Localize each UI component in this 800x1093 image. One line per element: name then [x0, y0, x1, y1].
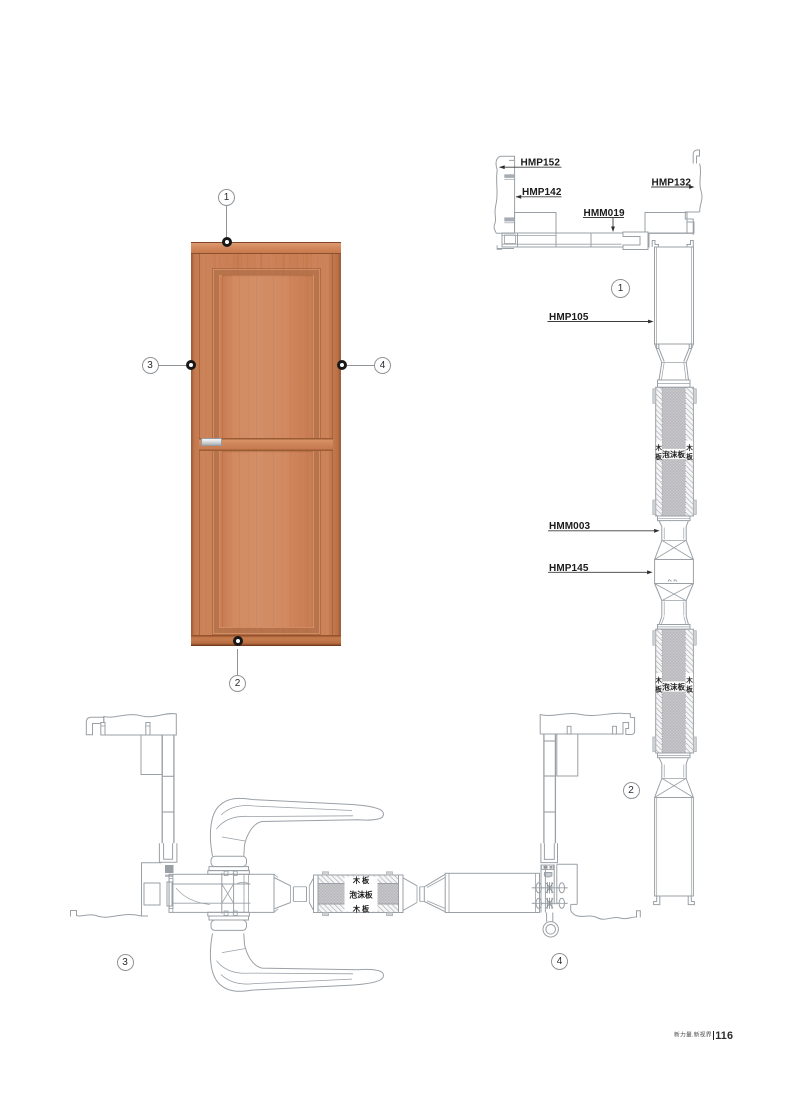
svg-text:木: 木	[654, 443, 662, 452]
svg-text:泡沫板: 泡沫板	[662, 449, 685, 459]
svg-text:木 板: 木 板	[352, 876, 370, 885]
svg-text:木: 木	[685, 676, 693, 685]
svg-text:木: 木	[654, 676, 662, 685]
svg-text:泡沫板: 泡沫板	[662, 681, 685, 691]
svg-text:HMM003: HMM003	[549, 521, 591, 532]
svg-text:板: 板	[686, 685, 693, 694]
svg-text:板: 板	[686, 452, 693, 461]
svg-text:木 板: 木 板	[352, 905, 370, 914]
svg-text:HMP152: HMP152	[521, 157, 561, 168]
svg-text:木: 木	[685, 443, 693, 452]
svg-text:泡沫板: 泡沫板	[349, 890, 373, 900]
